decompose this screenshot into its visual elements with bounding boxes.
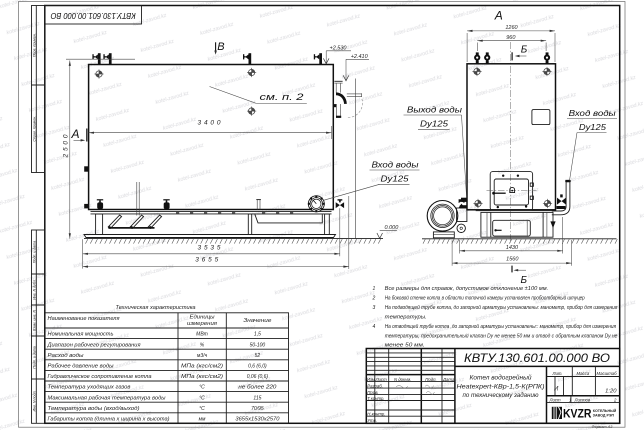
svg-text:Все размеры для справок, допус: Все размеры для справок, допустимое откл… (385, 286, 549, 292)
svg-text:1:20: 1:20 (605, 388, 617, 394)
svg-text:И: И (554, 386, 559, 392)
svg-text:ЗАВОД РЭП: ЗАВОД РЭП (593, 413, 615, 417)
svg-text:Инв. N подл.: Инв. N подл. (33, 390, 37, 411)
svg-text:Котел водогрейный: Котел водогрейный (470, 375, 533, 382)
svg-text:Диапазон рабочего регулировани: Диапазон рабочего регулирования (46, 342, 141, 348)
svg-text:Рабочее давление воды: Рабочее давление воды (48, 364, 114, 370)
svg-text:КОТЕЛЬНЫЙ: КОТЕЛЬНЫЙ (593, 409, 617, 413)
svg-text:Подп.: Подп. (425, 377, 436, 382)
svg-text:На отводящей трубе котла ,до з: На отводящей трубе котла ,до запорной ар… (385, 323, 617, 330)
svg-text:KVZR: KVZR (563, 407, 592, 421)
svg-text:Выход воды: Выход воды (407, 104, 463, 114)
svg-text:МВт: МВт (196, 332, 208, 338)
svg-text:МПа (кгс/см2): МПа (кгс/см2) (181, 364, 223, 370)
svg-text:Утв.: Утв. (367, 418, 377, 423)
svg-text:Максимальная рабочая температу: Максимальная рабочая температура воды (48, 395, 166, 401)
svg-text:70/95: 70/95 (251, 406, 264, 412)
svg-text:Dy125: Dy125 (579, 122, 606, 132)
svg-text:Номинальная мощность: Номинальная мощность (48, 332, 114, 338)
svg-text:50-100: 50-100 (250, 342, 266, 348)
svg-text:Масштаб: Масштаб (597, 371, 618, 376)
svg-text:менее 50 мм.: менее 50 мм. (385, 342, 425, 348)
svg-text:измерения: измерения (187, 321, 217, 327)
svg-text:1: 1 (373, 286, 376, 292)
svg-text:0,06 (0,6): 0,06 (0,6) (247, 374, 269, 380)
svg-text:На боковой стенке котла в обла: На боковой стенке котла в области топочн… (385, 295, 585, 302)
svg-text:Вход воды: Вход воды (372, 160, 420, 170)
svg-text:МПа (кгс/см2): МПа (кгс/см2) (181, 374, 223, 380)
svg-text:см. п. 2: см. п. 2 (260, 92, 304, 102)
svg-text:Листов: Листов (574, 397, 591, 402)
svg-text:мм: мм (199, 417, 206, 423)
svg-text:0.000: 0.000 (385, 225, 400, 231)
svg-text:960: 960 (506, 35, 516, 41)
svg-text:В: В (217, 41, 224, 53)
svg-text:Температура воды (вход/выход): Температура воды (вход/выход) (48, 406, 140, 412)
svg-text:Единицы: Единицы (190, 315, 215, 321)
svg-text:Взам. инв. N: Взам. инв. N (33, 310, 37, 331)
svg-text:Пров.: Пров. (367, 390, 378, 395)
svg-text:не более 220: не более 220 (238, 385, 276, 391)
svg-text:Вход воды: Вход воды (569, 108, 617, 118)
svg-text:N докум.: N докум. (394, 377, 411, 382)
svg-text:На подводящей трубе котла, д: На подводящей трубе котла, до запорной а… (385, 304, 618, 311)
svg-text:Габариты котла (длинна х ширин: Габариты котла (длинна х ширина х высота… (48, 417, 170, 423)
svg-text:Heatexpert-КВр-1,5-К(РПК): Heatexpert-КВр-1,5-К(РПК) (457, 385, 545, 391)
svg-text:Справ. примен.: Справ. примен. (33, 116, 37, 142)
svg-text:Н.контр.: Н.контр. (367, 412, 385, 417)
svg-text:1560: 1560 (506, 256, 519, 262)
svg-text:А: А (494, 9, 503, 23)
svg-text:Подп. и дата: Подп. и дата (33, 346, 37, 369)
svg-text:КВТУ.130.601.00.000 ВО: КВТУ.130.601.00.000 ВО (464, 353, 610, 365)
svg-text:Перв. примен.: Перв. примен. (33, 33, 37, 57)
svg-text:Наименование показателя: Наименование показателя (48, 316, 120, 322)
svg-text:Гидравлическое сопротивление к: Гидравлическое сопротивление котла (48, 374, 152, 380)
svg-text:температуры.: температуры. (385, 314, 427, 320)
svg-text:1430: 1430 (506, 245, 519, 251)
svg-text:температуры, предохранительный: температуры, предохранительный клапан Dy… (385, 332, 618, 339)
svg-text:°С: °С (199, 406, 205, 412)
svg-text:2: 2 (372, 296, 376, 302)
svg-text:Подп. и дата: Подп. и дата (33, 241, 37, 264)
svg-text:°С: °С (199, 395, 205, 401)
svg-text:Значение: Значение (243, 318, 271, 324)
svg-text:Формат А3: Формат А3 (592, 425, 614, 429)
svg-text:м3/ч: м3/ч (197, 353, 208, 359)
svg-text:Расход воды: Расход воды (48, 353, 84, 359)
svg-text:52: 52 (255, 353, 261, 359)
svg-text:по техническому заданию: по техническому заданию (463, 393, 539, 399)
svg-text:4: 4 (373, 324, 376, 330)
svg-text:Лист: Лист (375, 377, 387, 382)
svg-text:115: 115 (253, 395, 261, 401)
svg-text:Б: Б (521, 275, 528, 286)
svg-text:Dy125: Dy125 (420, 119, 448, 129)
svg-text:0,6 (6,0): 0,6 (6,0) (248, 364, 267, 370)
svg-text:Температура уходящих газов: Температура уходящих газов (48, 385, 131, 391)
svg-text:Техническая характеристика: Техническая характеристика (116, 305, 197, 311)
svg-text:%: % (200, 342, 205, 348)
svg-text:+2.410: +2.410 (351, 54, 369, 60)
svg-text:Дата: Дата (442, 377, 455, 382)
svg-text:3655х1530х2570: 3655х1530х2570 (235, 417, 279, 423)
svg-text:Лист: Лист (549, 397, 561, 402)
svg-text:КВТУ.130.601.00.000 ВО: КВТУ.130.601.00.000 ВО (51, 11, 136, 20)
svg-text:1260: 1260 (505, 25, 518, 31)
svg-text:Dy125: Dy125 (381, 174, 409, 184)
svg-text:А: А (71, 127, 80, 141)
svg-text:1,5: 1,5 (254, 332, 261, 338)
svg-text:Разраб.: Разраб. (367, 383, 383, 388)
svg-text:Масса: Масса (577, 371, 590, 376)
svg-text:3: 3 (373, 305, 376, 311)
svg-text:Инв. N дубл.: Инв. N дубл. (33, 279, 37, 300)
svg-text:Т.контр.: Т.контр. (367, 396, 384, 401)
svg-text:Лит.: Лит. (552, 371, 563, 376)
svg-text:°С: °С (199, 385, 205, 391)
svg-text:Б: Б (521, 45, 528, 56)
